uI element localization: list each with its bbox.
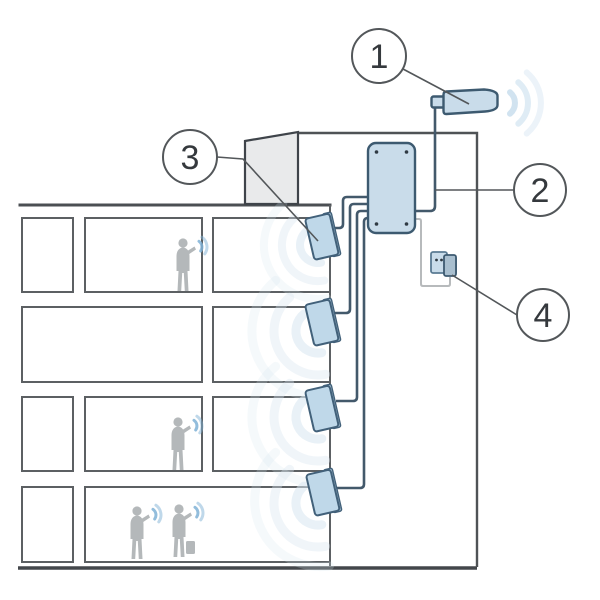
screw-icon — [375, 150, 379, 154]
outlet-socket-hole — [440, 259, 443, 262]
callout-3-number: 3 — [181, 139, 200, 177]
screw-icon — [405, 222, 409, 226]
room — [22, 397, 73, 471]
room — [22, 487, 73, 562]
outlet-socket-hole — [435, 259, 438, 262]
outdoor-signal-waves-icon — [510, 72, 541, 133]
signal-amplifier-unit — [368, 143, 415, 233]
callouts: 1 2 3 4 — [163, 29, 569, 341]
power-outlet — [431, 252, 457, 276]
callout-4-number: 4 — [534, 297, 553, 335]
power-connection — [415, 219, 457, 286]
screw-icon — [405, 150, 409, 154]
briefcase-icon — [186, 541, 195, 554]
cable-to-indoor-antenna-4 — [336, 218, 368, 488]
screw-icon — [375, 222, 379, 226]
callout-2-number: 2 — [531, 172, 550, 210]
callout-2: 2 — [435, 164, 566, 216]
rooftop-structure — [245, 132, 298, 204]
antenna-downlead-cable — [415, 98, 435, 211]
power-plug — [444, 255, 456, 276]
callout-4-leader — [452, 275, 517, 315]
room — [22, 218, 73, 292]
callout-1-number: 1 — [370, 38, 389, 76]
callout-4: 4 — [452, 275, 569, 341]
signal-booster-diagram: 1 2 3 4 — [0, 0, 600, 600]
room — [85, 397, 202, 471]
outdoor-donor-antenna — [432, 72, 541, 133]
amplifier-box — [368, 143, 415, 233]
room — [22, 307, 202, 382]
diagram-canvas: 1 2 3 4 — [0, 0, 600, 600]
antenna-body — [444, 90, 498, 115]
